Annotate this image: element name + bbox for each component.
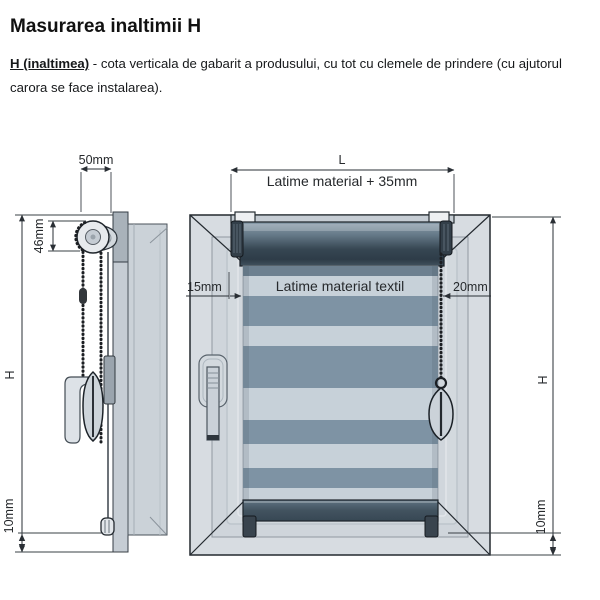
description-term: H (inaltimea) <box>10 56 89 71</box>
front-roller-endcap-right <box>440 221 452 255</box>
front-dim-l-label: L <box>339 153 346 167</box>
side-dim-50-label: 50mm <box>79 153 114 167</box>
front-bar-clip-right <box>425 516 438 537</box>
front-dim-10-arrow-down <box>550 547 556 554</box>
front-handle-grip-cap <box>207 435 219 440</box>
front-dim-15-label: 15mm <box>187 280 222 294</box>
side-view: 50mm 46mm H 10mm <box>2 153 167 552</box>
side-dim-10-arrow-down <box>19 544 25 551</box>
fabric-width-label: Latime material textil <box>276 278 404 294</box>
description-text: - cota verticala de gabarit a produsului… <box>10 56 562 95</box>
side-dim-h-label: H <box>3 370 17 379</box>
front-bottom-bar <box>243 500 438 521</box>
front-roller-tube-highlight <box>242 224 442 231</box>
front-dim-10-label: 10mm <box>534 500 548 535</box>
text-block: Masurarea inaltimii H H (inaltimea) - co… <box>0 0 600 101</box>
fabric-stripe <box>243 296 438 326</box>
fabric-stripe <box>243 266 438 276</box>
page-title: Masurarea inaltimii H <box>10 16 600 38</box>
side-dim-10-label: 10mm <box>2 499 16 534</box>
side-chain-guide <box>104 356 115 404</box>
fabric-stripe <box>243 346 438 388</box>
side-dim-10-arrow-up <box>19 534 25 541</box>
fabric-stripe <box>243 468 438 488</box>
front-dim-h-label: H <box>536 375 550 384</box>
side-dim-46-label: 46mm <box>32 219 46 254</box>
side-bottom-clip <box>101 518 114 535</box>
side-roller-axis <box>91 235 96 240</box>
front-bar-clip-left <box>243 516 256 537</box>
front-dim-l-note: Latime material + 35mm <box>267 173 418 189</box>
side-chain-connector <box>79 288 87 304</box>
front-dim-20-label: 20mm <box>453 280 488 294</box>
fabric-edge-shade-left <box>243 266 249 500</box>
description: H (inaltimea) - cota verticala de gabari… <box>10 52 590 101</box>
front-dim-10-arrow-up <box>550 534 556 541</box>
front-view: L Latime material + 35mm 15mm Latime mat… <box>186 153 561 555</box>
fabric-stripe <box>243 420 438 444</box>
